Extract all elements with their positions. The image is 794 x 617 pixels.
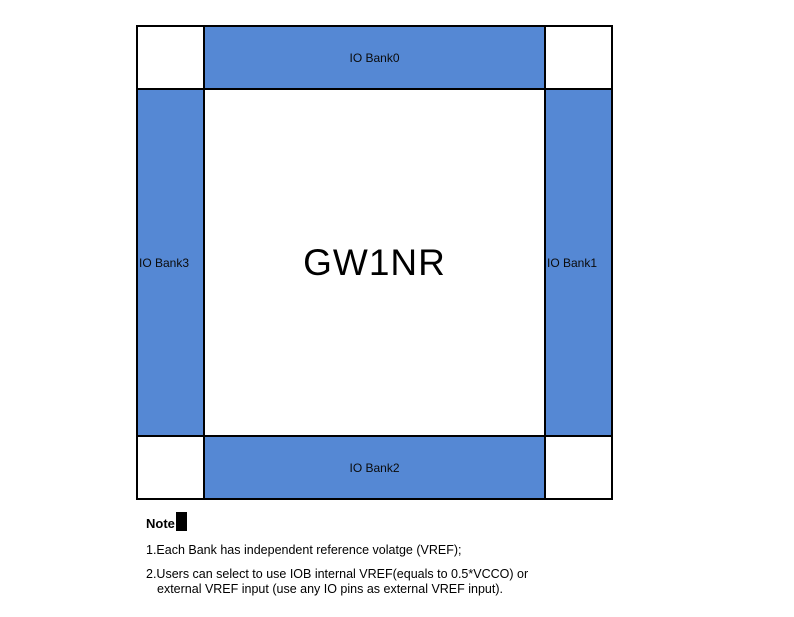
black-box-glyph-icon — [176, 512, 187, 531]
io-bank1-label: IO Bank1 — [546, 256, 597, 270]
chip-core: GW1NR — [205, 90, 544, 435]
note-item-2-line-1: 2.Users can select to use IOB internal V… — [146, 567, 528, 582]
notes-section: Note 1.Each Bank has independent referen… — [146, 512, 528, 597]
notes-heading-row: Note — [146, 512, 528, 534]
io-bank1: IO Bank1 — [546, 90, 611, 435]
io-bank3-label: IO Bank3 — [138, 256, 189, 270]
corner-top-left — [138, 27, 203, 88]
notes-heading: Note — [146, 512, 175, 531]
io-bank-diagram: IO Bank0 IO Bank3 GW1NR IO Bank1 IO Bank… — [136, 25, 613, 500]
note-item-2: 2.Users can select to use IOB internal V… — [146, 567, 528, 597]
corner-top-right — [546, 27, 611, 88]
note-item-2-line-2: external VREF input (use any IO pins as … — [146, 582, 528, 597]
io-bank2-label: IO Bank2 — [349, 461, 399, 475]
io-bank2: IO Bank2 — [205, 437, 544, 498]
io-bank0: IO Bank0 — [205, 27, 544, 88]
io-bank3: IO Bank3 — [138, 90, 203, 435]
chip-label: GW1NR — [303, 242, 446, 284]
corner-bottom-right — [546, 437, 611, 498]
page: { "diagram": { "chip_label": "GW1NR", "b… — [0, 0, 794, 617]
corner-bottom-left — [138, 437, 203, 498]
io-bank0-label: IO Bank0 — [349, 51, 399, 65]
note-item-1: 1.Each Bank has independent reference vo… — [146, 543, 528, 558]
